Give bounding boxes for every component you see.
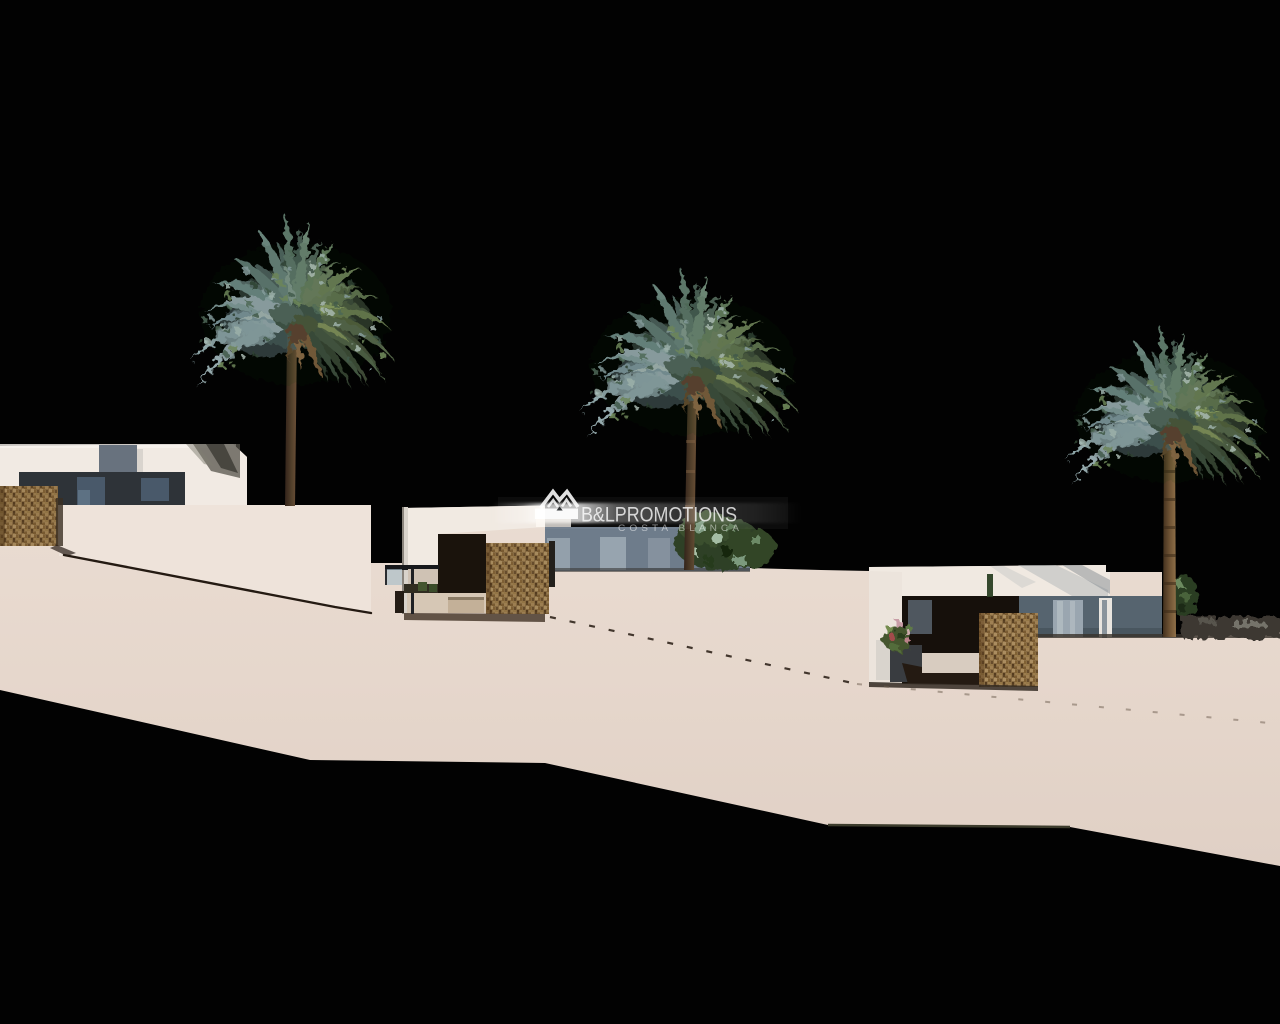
svg-text:COSTA BLANCA: COSTA BLANCA bbox=[618, 523, 743, 533]
